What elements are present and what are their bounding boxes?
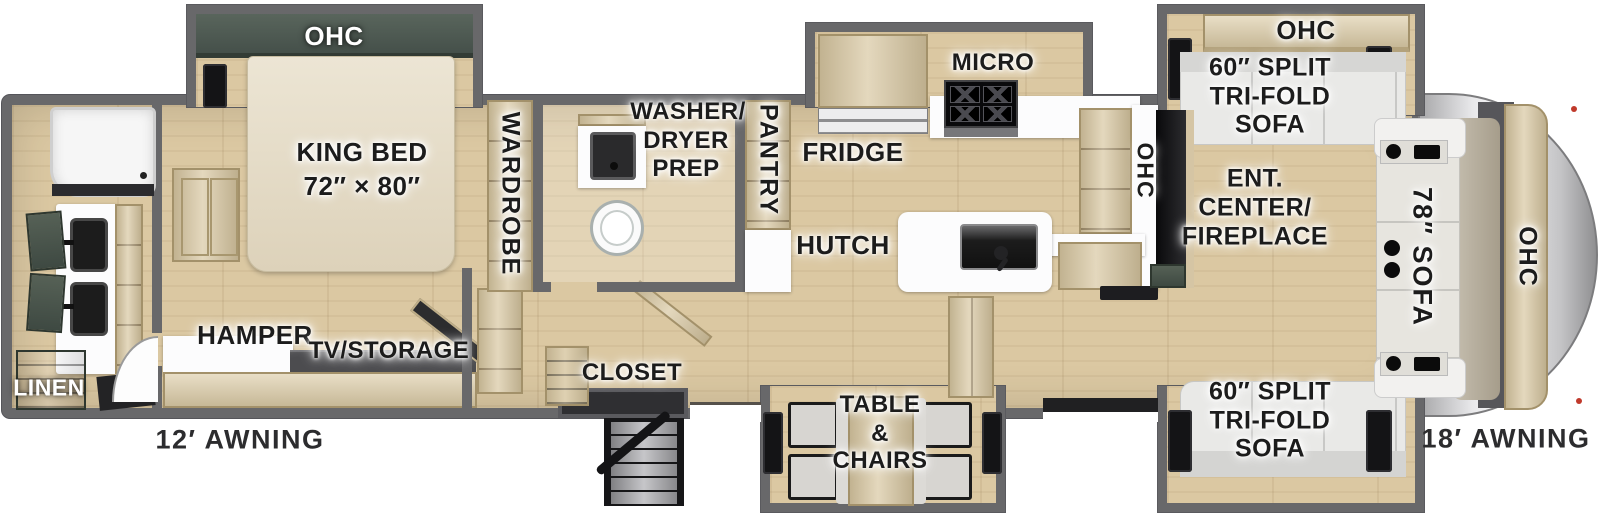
cooktop-front: [944, 128, 1018, 137]
burner: [950, 86, 980, 103]
sofa-bottom-window-right: [1366, 410, 1392, 472]
toilet-seat: [600, 210, 634, 246]
label-bedroom-ohc: OHC: [304, 23, 363, 49]
label-washer-prep-2: DRYER: [643, 129, 729, 153]
door-panel: [210, 178, 238, 256]
dinette-chair: [922, 454, 972, 500]
washer-basin-drain: [610, 162, 618, 170]
cooktop: [944, 80, 1018, 128]
label-table-chairs-1: TABLE: [840, 393, 921, 417]
cupholder: [1384, 240, 1400, 256]
kitchen-cabinets: [1079, 108, 1132, 234]
midbath-wall-right: [735, 100, 745, 292]
kitchen-lower-cabinet: [1058, 242, 1142, 290]
hutch-counter: [745, 230, 791, 292]
label-sofa-top-2: TRI-FOLD: [1210, 85, 1331, 110]
entry-door-opening-main: [1043, 412, 1158, 422]
label-sofa-top-3: SOFA: [1235, 113, 1305, 138]
step-tread: [611, 492, 677, 504]
console-tray: [1414, 145, 1440, 159]
label-pantry: PANTRY: [756, 104, 781, 216]
shower-drain: [140, 172, 147, 179]
door-panel: [181, 178, 209, 256]
label-kitchen-ohc: OHC: [1134, 142, 1157, 199]
dinette-chair: [788, 402, 838, 448]
burner: [983, 106, 1013, 123]
label-washer-prep-1: WASHER/: [630, 100, 746, 124]
label-linen: LINEN: [13, 377, 85, 400]
step-tread: [611, 464, 677, 476]
medicine-cabinet: [26, 273, 66, 333]
label-sofa-bottom-1: 60″ SPLIT: [1209, 380, 1331, 405]
vanity-sink: [70, 282, 108, 336]
label-living-ohc-top: OHC: [1276, 17, 1335, 43]
label-fridge: FRIDGE: [802, 139, 903, 165]
label-ent-center-1: ENT.: [1227, 167, 1283, 192]
label-hutch: HUTCH: [796, 232, 890, 258]
midbath-wall-left: [533, 100, 543, 292]
dinette-chair: [922, 402, 972, 448]
entry-door-opening-rear: [690, 402, 761, 422]
dinette-window-left: [763, 412, 783, 474]
label-awning-right: 18′ AWNING: [1422, 426, 1591, 453]
entry-side-cabinet: [948, 296, 994, 398]
cupholder: [1386, 356, 1401, 371]
step-tread: [611, 478, 677, 490]
fireplace-hearth: [1100, 286, 1158, 300]
entertainment-center: [1156, 110, 1186, 288]
label-wardrobe: WARDROBE: [498, 112, 523, 277]
vanity-sink: [70, 218, 108, 272]
dinette-window-right: [982, 412, 1002, 474]
label-sofa-top-1: 60″ SPLIT: [1209, 56, 1331, 81]
closet-cabinet: [477, 288, 523, 394]
label-sofa-bottom-2: TRI-FOLD: [1210, 409, 1331, 434]
medicine-cabinet: [26, 211, 67, 272]
burner: [950, 106, 980, 123]
refrigerator-doors: [818, 108, 928, 134]
label-front-sofa: 78″ SOFA: [1409, 187, 1436, 327]
label-front-ohc: OHC: [1515, 226, 1540, 288]
label-awning-left: 12′ AWNING: [156, 427, 325, 454]
label-table-chairs-3: CHAIRS: [832, 449, 927, 473]
label-ent-center-3: FIREPLACE: [1182, 225, 1328, 250]
label-tv-storage: TV/STORAGE: [309, 339, 470, 363]
bedroom-door: [172, 168, 240, 262]
entertainment-center-trim: [1186, 110, 1194, 288]
shower-threshold: [52, 184, 154, 196]
entertainment-center-base: [1150, 264, 1186, 288]
dinette-chair: [788, 454, 838, 500]
washer-dryer-basin: [590, 132, 636, 180]
label-king-bed-size: 72″ × 80″: [304, 173, 421, 199]
console-tray: [1414, 357, 1440, 371]
sofa-bottom-window-left: [1168, 410, 1192, 472]
label-king-bed: KING BED: [296, 139, 427, 165]
cap-marker-light-top: [1571, 106, 1577, 112]
label-sofa-bottom-3: SOFA: [1235, 437, 1305, 462]
rv-floorplan: OHC KING BED 72″ × 80″ WARDROBE WASHER/ …: [0, 0, 1600, 528]
cap-marker-light-bottom: [1576, 398, 1582, 404]
cupholder: [1386, 144, 1401, 159]
burner: [983, 86, 1013, 103]
label-hamper: HAMPER: [197, 322, 313, 348]
label-closet: CLOSET: [582, 361, 682, 385]
label-micro: MICRO: [952, 51, 1035, 75]
cupholder: [1384, 262, 1400, 278]
midbath-door-opening: [551, 282, 597, 292]
bedroom-slide-window: [203, 64, 227, 108]
refrigerator: [818, 34, 928, 108]
label-table-chairs-2: &: [871, 422, 889, 446]
label-ent-center-2: CENTER/: [1198, 196, 1311, 221]
tv-storage-console: [163, 372, 477, 408]
entry-threshold-main: [1043, 398, 1158, 412]
label-washer-prep-3: PREP: [652, 157, 719, 181]
